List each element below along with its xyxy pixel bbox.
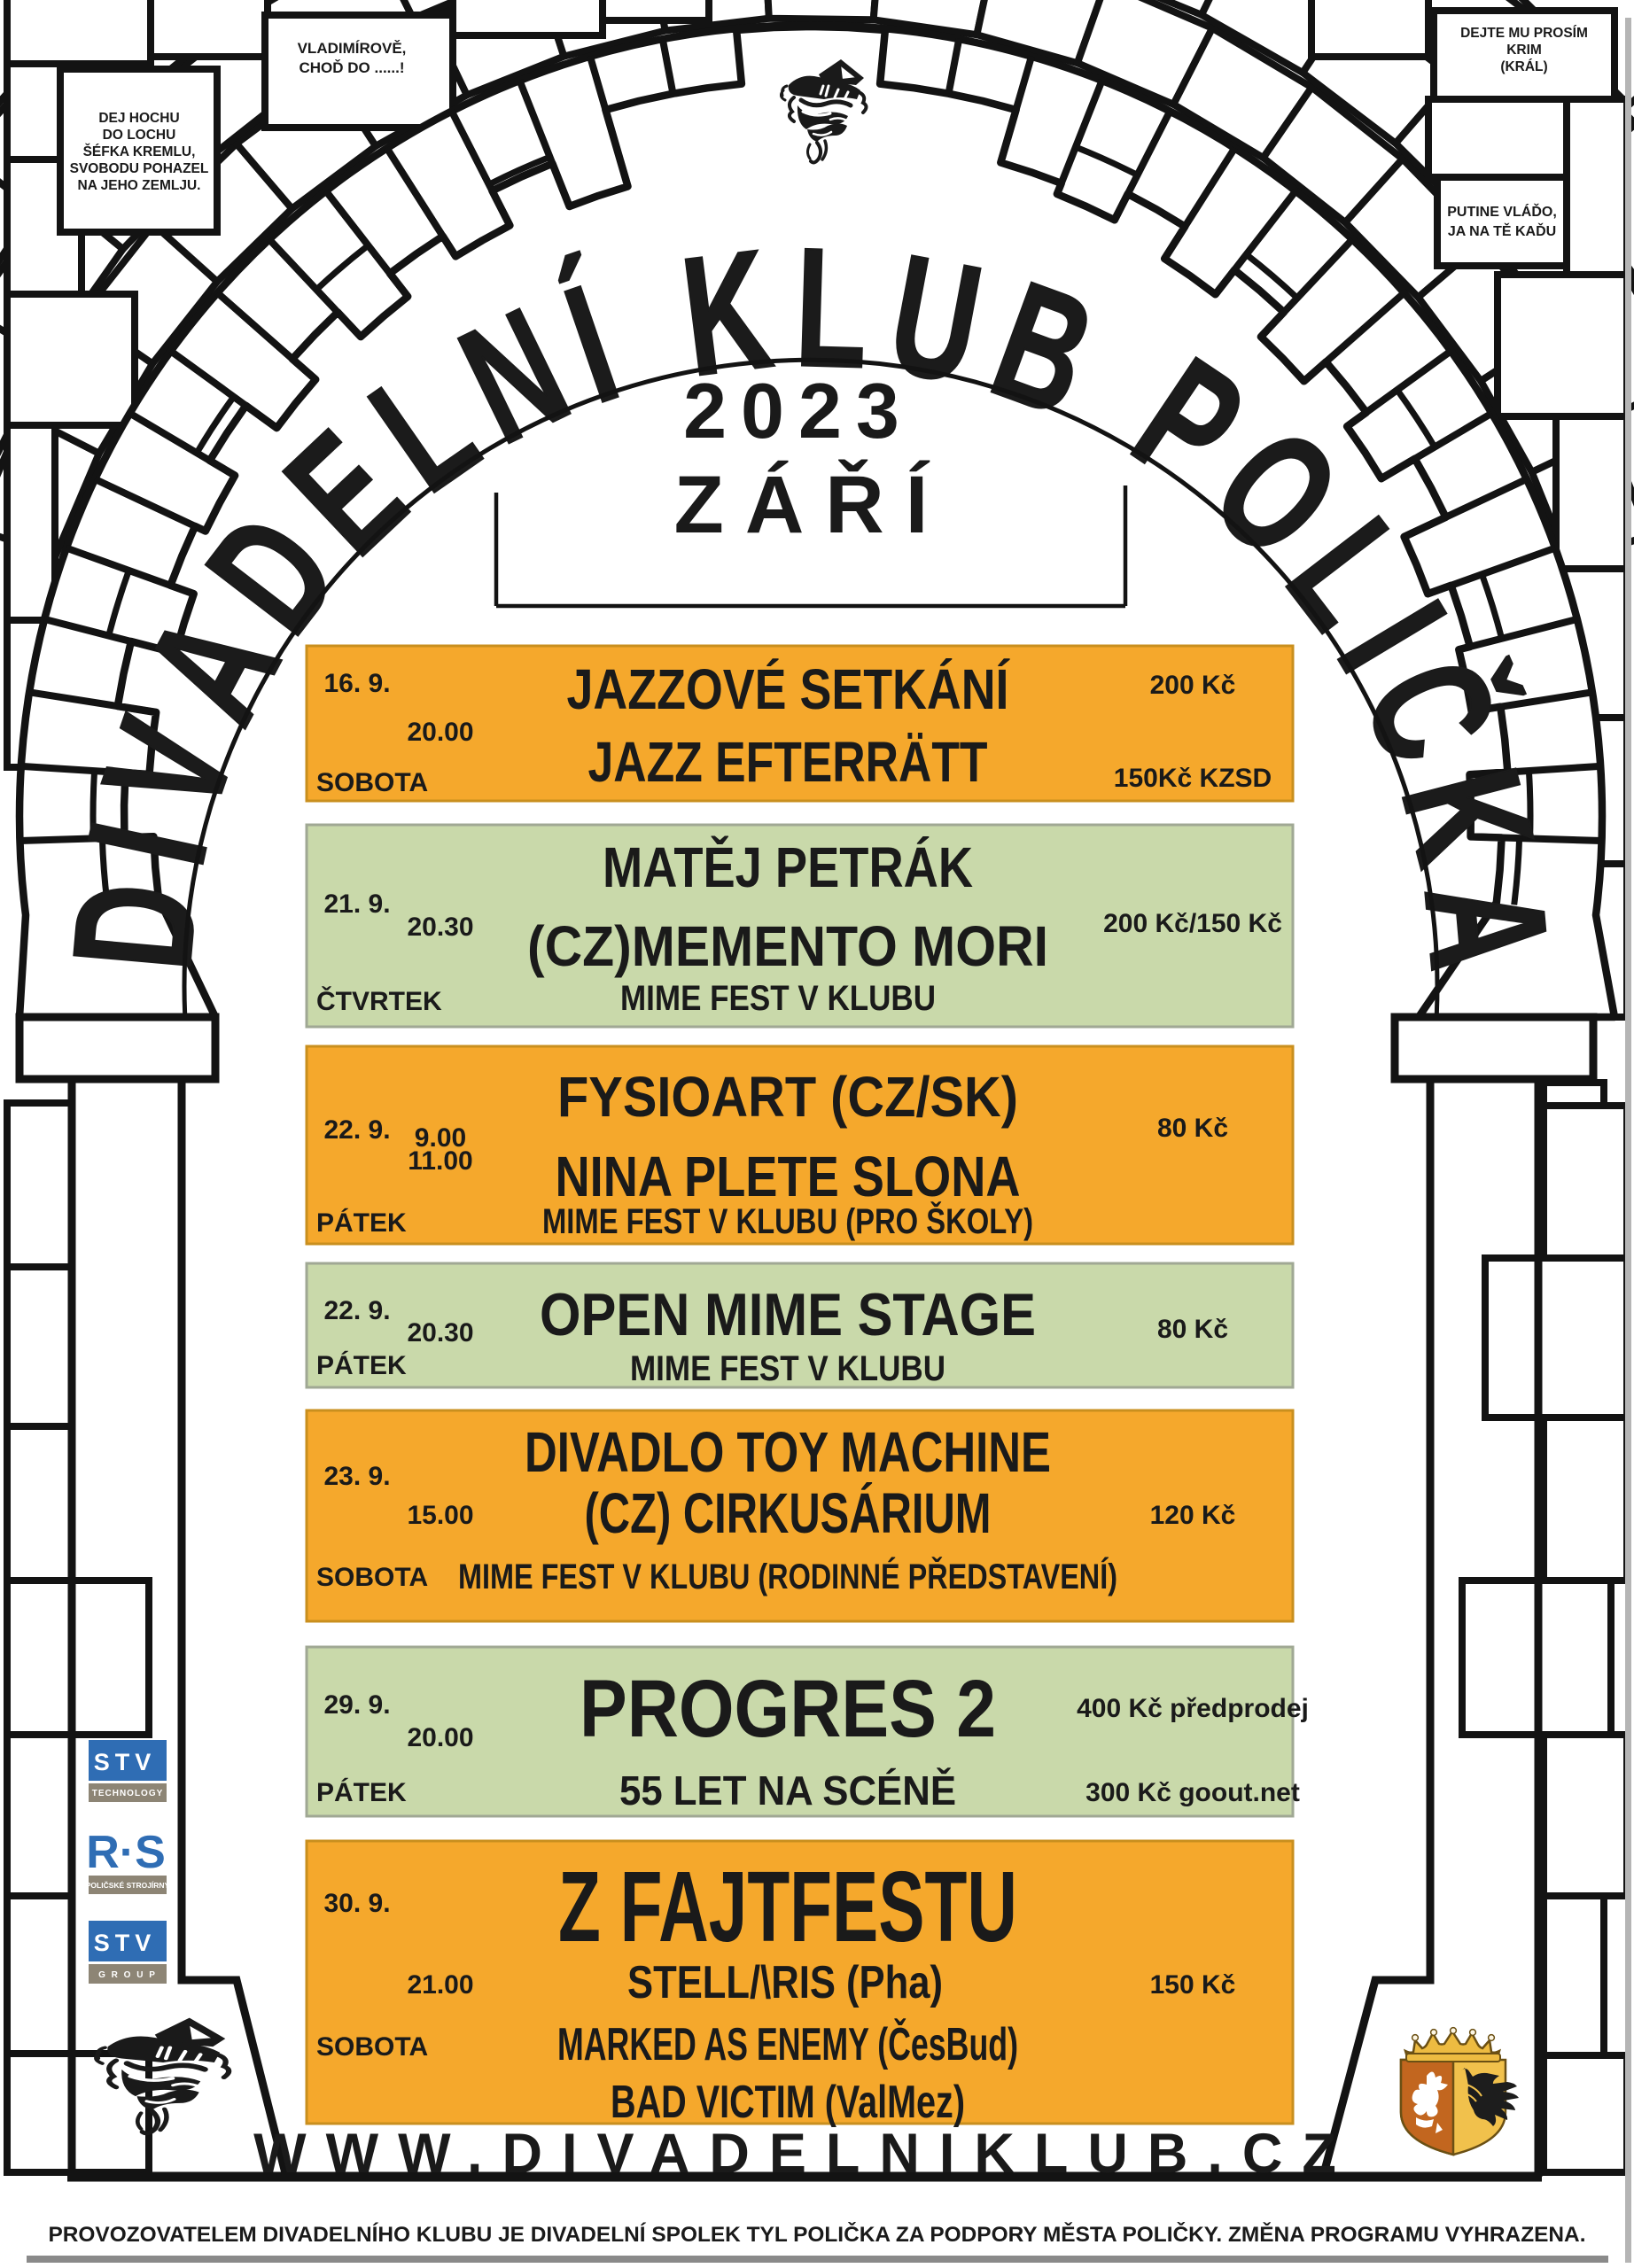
svg-text:OPEN MIME STAGE: OPEN MIME STAGE xyxy=(540,1281,1036,1348)
svg-text:MIME FEST V KLUBU: MIME FEST V KLUBU xyxy=(620,979,936,1018)
svg-text:PUTINE VLÁĎO,: PUTINE VLÁĎO, xyxy=(1447,203,1557,220)
svg-text:R·S: R·S xyxy=(86,1827,166,1878)
svg-text:ČTVRTEK: ČTVRTEK xyxy=(316,986,442,1016)
svg-text:SOBOTA: SOBOTA xyxy=(316,2032,428,2062)
svg-text:MIME FEST V KLUBU (PRO ŠKOLY): MIME FEST V KLUBU (PRO ŠKOLY) xyxy=(542,1200,1033,1241)
svg-text:STV: STV xyxy=(94,1749,157,1775)
svg-text:WWW.DIVADELNIKLUB.CZ: WWW.DIVADELNIKLUB.CZ xyxy=(253,2123,1356,2185)
svg-text:NINA PLETE SLONA: NINA PLETE SLONA xyxy=(556,1145,1021,1208)
svg-text:JAZZOVÉ SETKÁNÍ: JAZZOVÉ SETKÁNÍ xyxy=(567,657,1011,721)
svg-text:80 Kč: 80 Kč xyxy=(1157,1315,1228,1344)
svg-text:D: D xyxy=(36,876,233,976)
svg-text:200 Kč/150 Kč: 200 Kč/150 Kč xyxy=(1103,909,1282,938)
svg-text:21.00: 21.00 xyxy=(407,1970,473,2000)
svg-text:JAZZ EFTERRÄTT: JAZZ EFTERRÄTT xyxy=(588,730,988,794)
svg-text:PÁTEK: PÁTEK xyxy=(316,1350,407,1380)
svg-text:20.00: 20.00 xyxy=(407,1723,473,1752)
svg-text:VLADIMÍROVĚ,: VLADIMÍROVĚ, xyxy=(298,40,407,57)
svg-text:DEJTE MU PROSÍM: DEJTE MU PROSÍM xyxy=(1460,26,1588,41)
svg-text:A: A xyxy=(1389,876,1586,976)
svg-text:22. 9.: 22. 9. xyxy=(323,1115,390,1145)
svg-text:MIME FEST V KLUBU: MIME FEST V KLUBU xyxy=(630,1349,945,1388)
svg-text:SVOBODU POHAZEL: SVOBODU POHAZEL xyxy=(70,161,209,176)
svg-text:16. 9.: 16. 9. xyxy=(323,669,390,698)
svg-text:POLIČSKÉ STROJÍRNY: POLIČSKÉ STROJÍRNY xyxy=(86,1880,170,1890)
svg-text:CHOĎ DO ......!: CHOĎ DO ......! xyxy=(300,59,405,76)
svg-text:DIVADLO TOY MACHINE: DIVADLO TOY MACHINE xyxy=(525,1420,1051,1484)
svg-text:11.00: 11.00 xyxy=(408,1146,472,1176)
svg-text:ŠÉFKA KREMLU,: ŠÉFKA KREMLU, xyxy=(83,144,196,159)
svg-text:55 LET NA SCÉNĚ: 55 LET NA SCÉNĚ xyxy=(619,1767,956,1814)
svg-text:80 Kč: 80 Kč xyxy=(1157,1114,1228,1143)
svg-text:30. 9.: 30. 9. xyxy=(323,1889,390,1918)
svg-text:STELL/\RIS (Pha): STELL/\RIS (Pha) xyxy=(627,1957,943,2008)
svg-text:(CZ)MEMENTO MORI: (CZ)MEMENTO MORI xyxy=(527,914,1048,978)
svg-text:15.00: 15.00 xyxy=(407,1501,473,1530)
svg-text:MATĚJ PETRÁK: MATĚJ PETRÁK xyxy=(603,835,973,899)
svg-text:FYSIOART (CZ/SK): FYSIOART (CZ/SK) xyxy=(557,1065,1018,1129)
svg-text:SOBOTA: SOBOTA xyxy=(316,768,428,797)
svg-text:(CZ) CIRKUSÁRIUM: (CZ) CIRKUSÁRIUM xyxy=(585,1481,992,1545)
svg-text:TECHNOLOGY: TECHNOLOGY xyxy=(92,1789,164,1798)
svg-text:2023: 2023 xyxy=(683,367,914,454)
svg-text:PÁTEK: PÁTEK xyxy=(316,1777,407,1807)
svg-text:150 Kč: 150 Kč xyxy=(1150,1970,1236,2000)
svg-text:PROVOZOVATELEM DIVADELNÍHO KLU: PROVOZOVATELEM DIVADELNÍHO KLUBU JE DIVA… xyxy=(49,2222,1586,2247)
svg-text:21. 9.: 21. 9. xyxy=(323,889,390,919)
svg-text:STV: STV xyxy=(94,1930,157,1956)
svg-text:29. 9.: 29. 9. xyxy=(323,1690,390,1720)
svg-text:300 Kč goout.net: 300 Kč goout.net xyxy=(1085,1778,1300,1807)
svg-text:MIME FEST V KLUBU (RODINNÉ PŘE: MIME FEST V KLUBU (RODINNÉ PŘEDSTAVENÍ) xyxy=(458,1556,1117,1596)
svg-text:20.00: 20.00 xyxy=(407,718,473,747)
svg-text:BAD VICTIM (ValMez): BAD VICTIM (ValMez) xyxy=(611,2077,965,2128)
svg-text:JA NA TĚ KAĎU: JA NA TĚ KAĎU xyxy=(1448,222,1556,239)
svg-text:20.30: 20.30 xyxy=(407,913,473,942)
svg-text:200 Kč: 200 Kč xyxy=(1150,671,1236,700)
svg-text:ZÁŘÍ: ZÁŘÍ xyxy=(674,459,950,550)
svg-text:22. 9.: 22. 9. xyxy=(323,1296,390,1325)
svg-text:SOBOTA: SOBOTA xyxy=(316,1563,428,1592)
svg-text:PÁTEK: PÁTEK xyxy=(316,1208,407,1238)
svg-text:MARKED AS ENEMY (ČesBud): MARKED AS ENEMY (ČesBud) xyxy=(557,2018,1018,2070)
svg-text:20.30: 20.30 xyxy=(407,1318,473,1348)
svg-text:KRIM: KRIM xyxy=(1506,43,1542,58)
svg-text:PROGRES 2: PROGRES 2 xyxy=(580,1664,996,1754)
svg-text:120 Kč: 120 Kč xyxy=(1150,1501,1236,1530)
svg-text:(KRÁL): (KRÁL) xyxy=(1500,59,1547,74)
svg-text:DO LOCHU: DO LOCHU xyxy=(103,128,176,143)
svg-text:Z FAJTFESTU: Z FAJTFESTU xyxy=(558,1851,1017,1962)
svg-text:23. 9.: 23. 9. xyxy=(323,1462,390,1491)
svg-text:NA JEHO ZEMLJU.: NA JEHO ZEMLJU. xyxy=(78,178,201,193)
svg-text:G R O U P: G R O U P xyxy=(98,1970,157,1980)
svg-text:DEJ HOCHU: DEJ HOCHU xyxy=(98,111,179,126)
svg-text:150Kč KZSD: 150Kč KZSD xyxy=(1114,764,1272,793)
svg-text:400 Kč předprodej: 400 Kč předprodej xyxy=(1077,1694,1309,1723)
